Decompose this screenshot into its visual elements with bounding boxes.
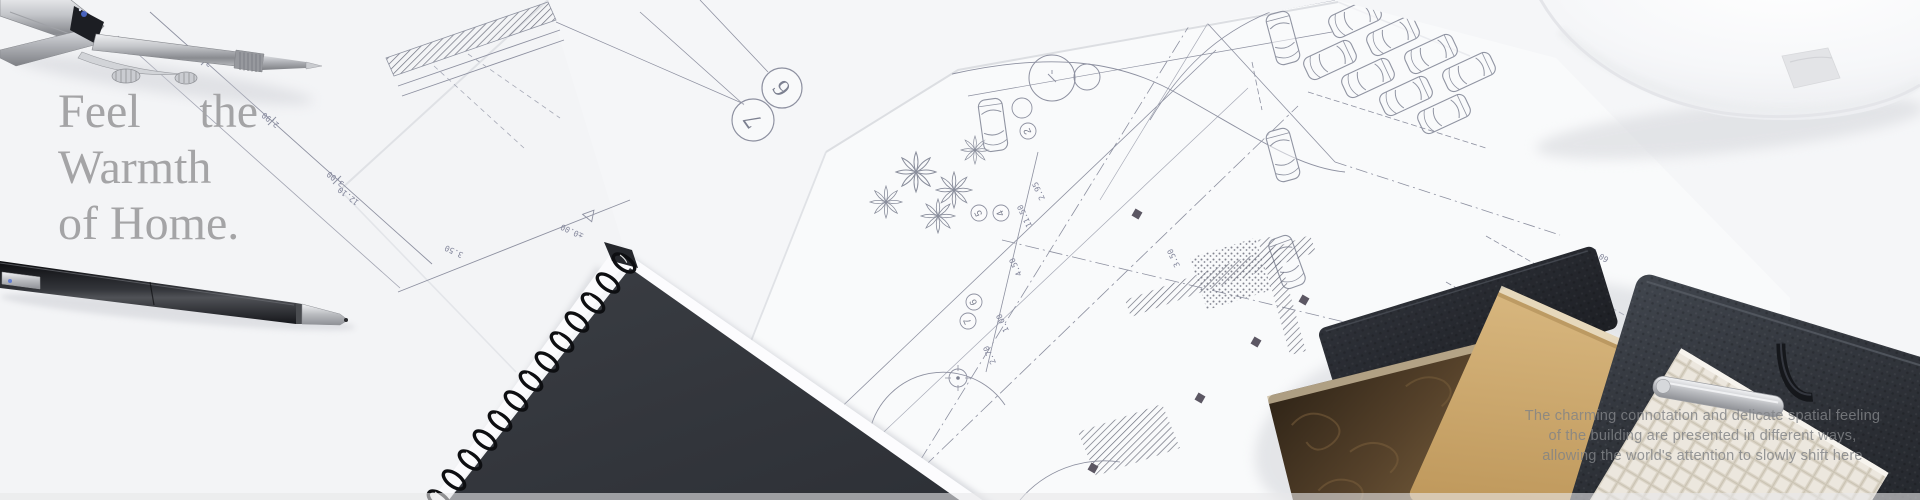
description-line-3: allowing the world's attention to slowly…	[1510, 446, 1895, 466]
headline-word: Feel	[58, 84, 141, 140]
headline-word: the	[199, 84, 258, 140]
hero-banner: 7 6 2.60 2.90 3.00 12.10 3.50 ±0.00 2.95…	[0, 0, 1920, 500]
hero-description: The charming connotation and delicate sp…	[1510, 406, 1895, 466]
headline-line-3: of Home.	[58, 196, 258, 252]
description-line-1: The charming connotation and delicate sp…	[1510, 406, 1895, 426]
headline-line-2: Warmth	[58, 140, 258, 196]
bottom-edge-strip	[0, 493, 1920, 500]
hero-headline: Feel the Warmth of Home.	[58, 84, 258, 252]
headline-line-1: Feel the	[58, 84, 258, 140]
description-line-2: of the building are presented in differe…	[1510, 426, 1895, 446]
